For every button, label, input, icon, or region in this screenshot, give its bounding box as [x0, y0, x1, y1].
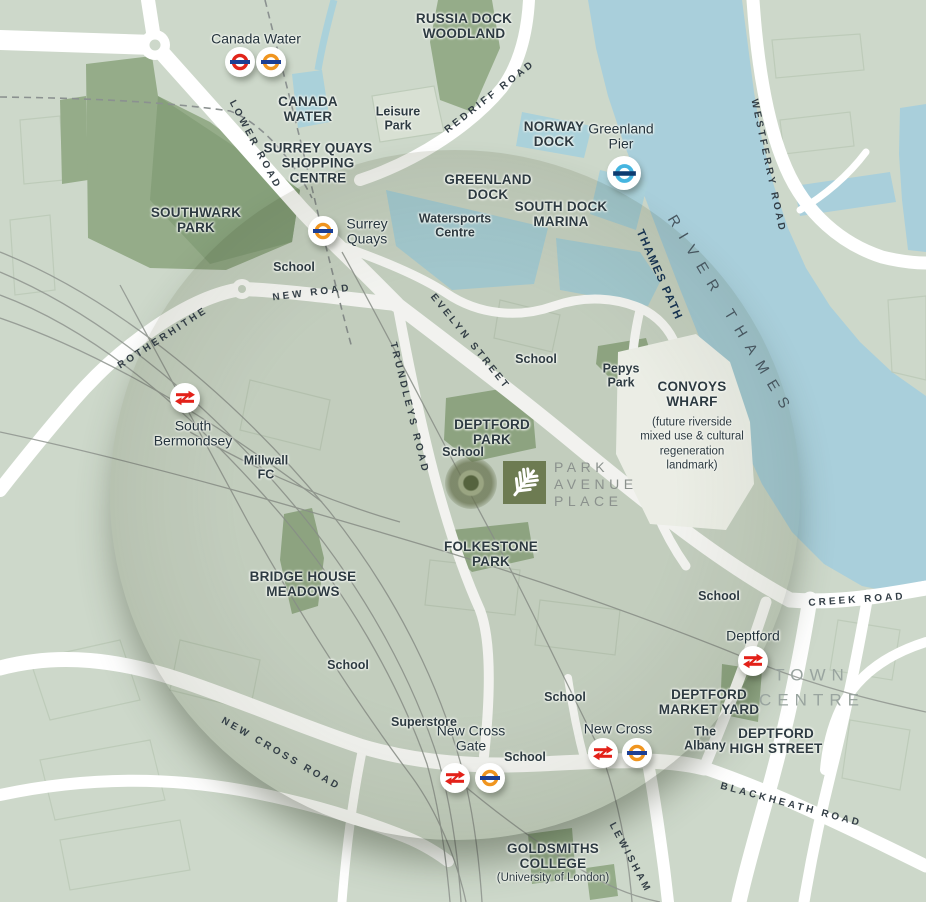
new-cross-gate-rail-roundel-icon	[440, 763, 470, 793]
deptford-rail-roundel-icon	[738, 646, 768, 676]
logo-line-2: AVENUE	[554, 476, 638, 493]
site-marker	[445, 457, 497, 509]
new-cross-gate-overground-roundel-icon	[475, 763, 505, 793]
location-map: RUSSIA DOCK WOODLANDCANADA WATERSURREY Q…	[0, 0, 926, 902]
greenland-pier-pier-roundel-icon	[607, 156, 641, 190]
canada-water-overground-roundel-icon	[256, 47, 286, 77]
park-avenue-place-logo-text: PARK AVENUE PLACE	[554, 459, 638, 509]
canada-water-underground-roundel-icon	[225, 47, 255, 77]
logo-line-3: PLACE	[554, 493, 638, 510]
surrey-quays-overground-roundel-icon	[308, 216, 338, 246]
new-cross-rail-roundel-icon	[588, 738, 618, 768]
south-bermondsey-rail-roundel-icon	[170, 383, 200, 413]
leaf-icon	[503, 461, 546, 504]
new-cross-overground-roundel-icon	[622, 738, 652, 768]
logo-line-1: PARK	[554, 459, 638, 476]
park-avenue-place-logo-icon	[503, 461, 546, 504]
